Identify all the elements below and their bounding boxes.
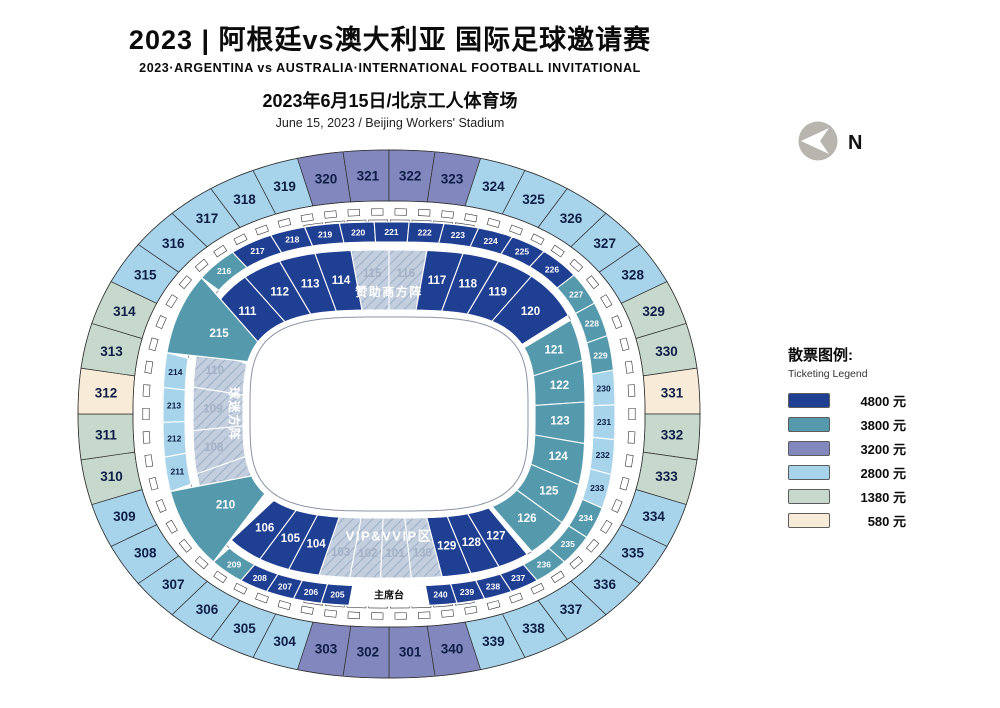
section-214-label: 214 xyxy=(168,367,182,377)
section-318-label: 318 xyxy=(233,192,256,207)
legend-swatch xyxy=(788,513,830,528)
section-339-label: 339 xyxy=(482,634,505,649)
aisle-marker xyxy=(487,601,500,610)
section-222-label: 222 xyxy=(418,228,432,238)
ticketing-legend: 散票图例: Ticketing Legend 4800 元3800 元3200 … xyxy=(788,344,978,538)
aisle-marker xyxy=(629,408,635,420)
aisle-marker xyxy=(586,539,598,552)
header: 2023 | 阿根廷vs澳大利亚 国际足球邀请赛 2023·ARGENTINA … xyxy=(0,18,780,130)
section-301-label: 301 xyxy=(399,645,422,660)
section-238-label: 238 xyxy=(486,582,500,592)
aisle-marker xyxy=(179,539,191,552)
section-101-label: 101 xyxy=(386,548,406,560)
legend-item-580: 580 元 xyxy=(788,514,978,527)
aisle-marker xyxy=(278,218,291,227)
section-306-label: 306 xyxy=(196,602,219,617)
aisle-marker xyxy=(620,338,629,351)
stage-box-label: 主席台 xyxy=(374,589,404,602)
aisle-marker xyxy=(531,583,544,594)
legend-price: 580 元 xyxy=(844,511,906,530)
section-311-label: 311 xyxy=(95,428,117,443)
section-328-label: 328 xyxy=(621,267,644,282)
section-115-label: 115 xyxy=(363,268,382,280)
section-123-label: 123 xyxy=(550,416,569,428)
aisle-marker xyxy=(301,606,313,614)
aisle-marker xyxy=(418,209,430,216)
section-309-label: 309 xyxy=(113,509,136,524)
legend-title-en: Ticketing Legend xyxy=(788,368,978,380)
section-237-label: 237 xyxy=(511,573,525,583)
section-103-label: 103 xyxy=(331,547,350,559)
section-321-label: 321 xyxy=(357,168,380,183)
section-102-label: 102 xyxy=(358,548,377,560)
aisle-marker xyxy=(234,234,247,245)
section-308-label: 308 xyxy=(134,546,157,561)
section-125-label: 125 xyxy=(539,485,559,497)
section-316-label: 316 xyxy=(162,236,185,251)
section-314-label: 314 xyxy=(113,304,136,319)
section-331-label: 331 xyxy=(661,386,684,401)
aisle-marker xyxy=(324,211,336,219)
aisle-marker xyxy=(156,316,166,329)
aisle-marker xyxy=(324,610,336,618)
legend-item-2800: 2800 元 xyxy=(788,466,978,479)
section-330-label: 330 xyxy=(655,344,678,359)
page-subtitle: 2023·ARGENTINA vs AUSTRALIA·INTERNATIONA… xyxy=(0,61,780,75)
section-109-label: 109 xyxy=(203,403,222,415)
aisle-marker xyxy=(465,214,477,222)
section-218-label: 218 xyxy=(285,235,299,245)
aisle-marker xyxy=(551,571,564,583)
section-127-label: 127 xyxy=(486,530,505,542)
section-226-label: 226 xyxy=(545,264,559,274)
legend-swatch xyxy=(788,489,830,504)
aisle-marker xyxy=(531,234,544,245)
legend-swatch xyxy=(788,393,830,408)
aisle-marker xyxy=(234,583,247,594)
aisle-marker xyxy=(195,259,208,271)
aisle-marker xyxy=(570,259,583,271)
legend-item-1380: 1380 元 xyxy=(788,490,978,503)
page-title: 2023 | 阿根廷vs澳大利亚 国际足球邀请赛 xyxy=(0,18,780,57)
section-319-label: 319 xyxy=(273,179,296,194)
section-108-label: 108 xyxy=(204,442,224,454)
legend-swatch xyxy=(788,465,830,480)
section-305-label: 305 xyxy=(233,621,256,636)
section-231-label: 231 xyxy=(597,417,611,427)
aisle-marker xyxy=(145,361,153,373)
aisle-marker xyxy=(214,245,227,257)
aisle-marker xyxy=(395,613,407,620)
aisle-marker xyxy=(628,431,635,443)
section-105-label: 105 xyxy=(281,533,301,545)
section-119-label: 119 xyxy=(488,286,507,298)
section-206-label: 206 xyxy=(304,587,318,597)
section-128-label: 128 xyxy=(462,537,482,549)
section-129-label: 129 xyxy=(437,540,456,552)
section-207-label: 207 xyxy=(278,582,292,592)
aisle-marker xyxy=(149,477,158,490)
aisle-marker xyxy=(179,276,191,289)
aisle-marker xyxy=(441,610,453,618)
section-126-label: 126 xyxy=(517,513,536,525)
section-227-label: 227 xyxy=(569,289,583,299)
aisle-marker xyxy=(372,613,384,620)
section-236-label: 236 xyxy=(537,560,551,570)
section-229-label: 229 xyxy=(593,351,607,361)
legend-item-3800: 3800 元 xyxy=(788,418,978,431)
section-213-label: 213 xyxy=(167,400,181,410)
section-225-label: 225 xyxy=(515,247,529,257)
section-113-label: 113 xyxy=(301,278,320,290)
aisle-marker xyxy=(143,432,150,444)
section-118-label: 118 xyxy=(459,278,478,290)
section-239-label: 239 xyxy=(460,587,474,597)
aisle-marker xyxy=(612,316,622,329)
section-106-label: 106 xyxy=(255,522,274,534)
section-323-label: 323 xyxy=(441,171,464,186)
section-303-label: 303 xyxy=(315,642,338,657)
section-334-label: 334 xyxy=(642,509,665,524)
section-230-label: 230 xyxy=(597,384,611,394)
zone-label-vip: VIP&VVIP区 xyxy=(346,529,432,544)
section-220-label: 220 xyxy=(351,227,365,237)
aisle-marker xyxy=(166,295,178,308)
section-307-label: 307 xyxy=(162,577,185,592)
section-219-label: 219 xyxy=(318,229,332,239)
legend-swatch xyxy=(788,417,830,432)
compass: N xyxy=(796,118,896,164)
aisle-marker xyxy=(278,600,291,609)
aisle-marker xyxy=(214,571,227,583)
section-124-label: 124 xyxy=(549,451,569,463)
section-336-label: 336 xyxy=(593,577,616,592)
pitch xyxy=(250,317,528,511)
legend-price: 3200 元 xyxy=(844,439,906,458)
section-233-label: 233 xyxy=(590,483,604,493)
aisle-marker xyxy=(510,593,523,603)
aisle-marker xyxy=(487,218,500,227)
section-338-label: 338 xyxy=(522,621,545,636)
aisle-marker xyxy=(156,499,166,512)
section-212-label: 212 xyxy=(167,434,181,444)
section-302-label: 302 xyxy=(357,645,380,660)
aisle-marker xyxy=(195,556,208,568)
aisle-marker xyxy=(551,245,564,257)
aisle-marker xyxy=(348,209,360,216)
aisle-marker xyxy=(612,499,622,512)
section-211-label: 211 xyxy=(171,467,185,477)
aisle-marker xyxy=(509,225,522,235)
section-111-label: 111 xyxy=(239,306,258,318)
aisle-marker xyxy=(441,211,453,219)
event-date-cn: 2023年6月15日/北京工人体育场 xyxy=(0,87,780,113)
aisle-marker xyxy=(395,209,407,216)
legend-item-3200: 3200 元 xyxy=(788,442,978,455)
legend-item-4800: 4800 元 xyxy=(788,394,978,407)
aisle-marker xyxy=(372,209,384,216)
section-205-label: 205 xyxy=(330,590,344,600)
section-315-label: 315 xyxy=(134,267,157,282)
aisle-marker xyxy=(348,612,360,619)
section-312-label: 312 xyxy=(95,386,118,401)
aisle-marker xyxy=(143,408,149,420)
section-122-label: 122 xyxy=(550,380,569,392)
section-235-label: 235 xyxy=(561,539,575,549)
section-310-label: 310 xyxy=(100,469,123,484)
section-215-label: 215 xyxy=(210,328,230,340)
aisle-marker xyxy=(625,361,633,373)
section-333-label: 333 xyxy=(655,469,678,484)
aisle-marker xyxy=(301,214,313,222)
aisle-marker xyxy=(149,338,158,351)
section-317-label: 317 xyxy=(196,211,219,226)
section-234-label: 234 xyxy=(579,513,593,523)
aisle-marker xyxy=(143,385,150,397)
legend-price: 1380 元 xyxy=(844,487,906,506)
aisle-marker xyxy=(465,606,477,614)
section-116-label: 116 xyxy=(397,268,416,280)
section-340-label: 340 xyxy=(441,642,464,657)
aisle-marker xyxy=(166,520,177,533)
aisle-marker xyxy=(625,455,633,467)
section-117-label: 117 xyxy=(428,275,447,287)
section-325-label: 325 xyxy=(522,192,545,207)
section-130-label: 130 xyxy=(413,548,432,560)
section-337-label: 337 xyxy=(560,602,583,617)
section-209-label: 209 xyxy=(227,560,241,570)
section-112-label: 112 xyxy=(270,287,289,299)
aisle-marker xyxy=(586,276,598,289)
zone-label-fans: 球迷方阵 xyxy=(227,387,242,441)
aisle-marker xyxy=(145,455,153,467)
aisle-marker xyxy=(256,225,269,235)
aisle-marker xyxy=(628,385,635,397)
section-313-label: 313 xyxy=(100,344,123,359)
section-232-label: 232 xyxy=(596,450,610,460)
section-104-label: 104 xyxy=(307,539,327,551)
legend-price: 3800 元 xyxy=(844,415,906,434)
aisle-marker xyxy=(255,593,268,603)
section-223-label: 223 xyxy=(451,230,465,240)
section-210-label: 210 xyxy=(216,500,235,512)
section-326-label: 326 xyxy=(560,211,583,226)
section-322-label: 322 xyxy=(399,168,422,183)
section-228-label: 228 xyxy=(585,319,599,329)
section-332-label: 332 xyxy=(661,428,684,443)
legend-price: 2800 元 xyxy=(844,463,906,482)
legend-swatch xyxy=(788,441,830,456)
section-217-label: 217 xyxy=(250,246,264,256)
zone-label-sponsor: 赞助商方阵 xyxy=(354,284,423,299)
aisle-marker xyxy=(601,520,613,533)
section-327-label: 327 xyxy=(593,236,616,251)
section-335-label: 335 xyxy=(621,546,644,561)
section-114-label: 114 xyxy=(332,275,351,287)
section-240-label: 240 xyxy=(433,590,447,600)
legend-price: 4800 元 xyxy=(844,391,906,410)
aisle-marker xyxy=(418,612,430,619)
section-304-label: 304 xyxy=(273,634,296,649)
section-221-label: 221 xyxy=(384,227,398,237)
section-324-label: 324 xyxy=(482,179,505,194)
section-121-label: 121 xyxy=(545,345,565,357)
aisle-marker xyxy=(570,556,583,568)
section-120-label: 120 xyxy=(521,306,540,318)
event-date-en: June 15, 2023 / Beijing Workers' Stadium xyxy=(0,116,780,130)
legend-title-cn: 散票图例: xyxy=(788,344,978,365)
section-110-label: 110 xyxy=(205,365,224,377)
section-208-label: 208 xyxy=(253,573,267,583)
north-label: N xyxy=(848,132,862,154)
section-329-label: 329 xyxy=(642,304,665,319)
aisle-marker xyxy=(601,295,612,308)
section-224-label: 224 xyxy=(484,236,498,246)
section-216-label: 216 xyxy=(217,266,231,276)
section-320-label: 320 xyxy=(315,171,338,186)
aisle-marker xyxy=(620,477,629,490)
